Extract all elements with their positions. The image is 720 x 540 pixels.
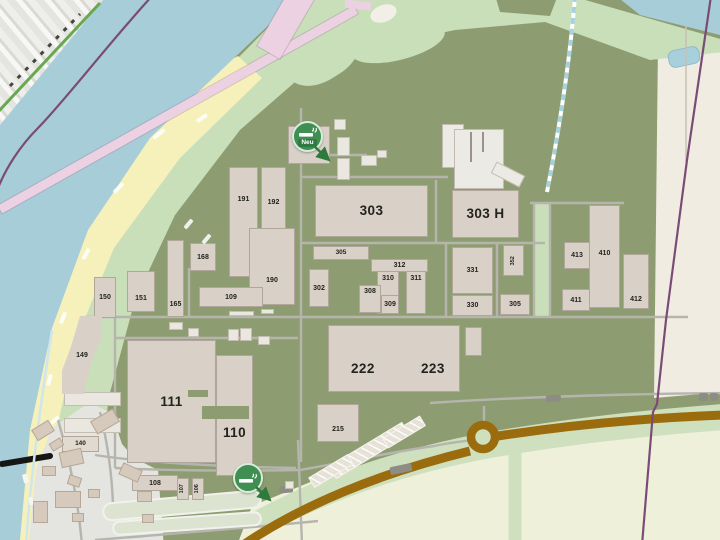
- building-331: 331: [452, 247, 493, 294]
- building-divider: [482, 132, 484, 152]
- building-309: 309: [381, 295, 399, 314]
- building-150: 150: [94, 277, 116, 318]
- building-411: 411: [562, 289, 590, 311]
- village-building: [42, 466, 56, 476]
- small-building: [228, 329, 239, 341]
- small-building: [337, 137, 350, 156]
- building-151: 151: [127, 271, 155, 312]
- building-222-annex: [465, 327, 482, 356]
- building-352: 352: [503, 245, 524, 276]
- courtyard: [188, 390, 208, 397]
- stream-dashed: [547, 0, 575, 192]
- cigarette-icon: [298, 126, 318, 138]
- harbor-jetty: [2, 456, 50, 464]
- building-107: 107: [177, 478, 189, 500]
- village-building: [137, 491, 152, 502]
- marker-badge: Neu: [298, 139, 316, 148]
- building-165: 165: [167, 240, 184, 317]
- hut: [710, 393, 718, 401]
- site-map: 191 192 168 190 109 150 151 165 149 303 …: [0, 0, 720, 540]
- small-building: [377, 150, 387, 158]
- hut: [699, 393, 708, 401]
- building-111: 111: [127, 340, 216, 463]
- building-109: 109: [199, 287, 263, 307]
- quay-marks: [10, 14, 80, 86]
- building-302: 302: [309, 269, 329, 307]
- village-building: [88, 489, 100, 498]
- small-building: [169, 322, 183, 330]
- building-413: 413: [564, 242, 590, 269]
- building-303: 303: [315, 185, 428, 237]
- storage-building: [64, 392, 121, 406]
- building-222-223: 222 223: [328, 325, 460, 392]
- vehicle-bay: [546, 394, 561, 402]
- construction-building: [454, 129, 504, 189]
- small-building: [240, 328, 252, 341]
- building-106: 106: [192, 478, 204, 500]
- building-215: 215: [317, 404, 359, 442]
- cigarette-icon: [238, 472, 258, 484]
- building-303h: 303 H: [452, 190, 519, 238]
- boundary-line-east: [642, 0, 711, 540]
- bank-green-line: [0, 3, 100, 112]
- small-building: [258, 336, 270, 345]
- village-building: [72, 513, 84, 522]
- building-330: 330: [452, 295, 493, 316]
- village-building: [142, 514, 154, 523]
- building-311: 311: [406, 271, 426, 314]
- small-building: [334, 119, 346, 130]
- building-412: 412: [623, 254, 649, 309]
- small-building: [229, 311, 254, 316]
- building-305-north: 305: [313, 246, 369, 260]
- courtyard: [202, 406, 249, 419]
- small-building: [188, 328, 199, 337]
- village-building: [33, 501, 48, 523]
- roundabout: [471, 425, 495, 449]
- small-building: [337, 158, 350, 180]
- smoking-area-marker-neu[interactable]: Neu: [292, 121, 323, 152]
- building-410: 410: [589, 205, 620, 308]
- building-192: 192: [261, 167, 286, 237]
- small-building: [361, 155, 377, 166]
- small-building: [285, 481, 294, 489]
- building-168: 168: [190, 243, 216, 271]
- building-305-south: 305: [500, 294, 530, 315]
- building-308: 308: [359, 285, 381, 313]
- small-building: [261, 309, 274, 314]
- village-building: [55, 491, 81, 508]
- building-divider: [470, 132, 472, 162]
- smoking-area-marker-south[interactable]: [233, 463, 263, 493]
